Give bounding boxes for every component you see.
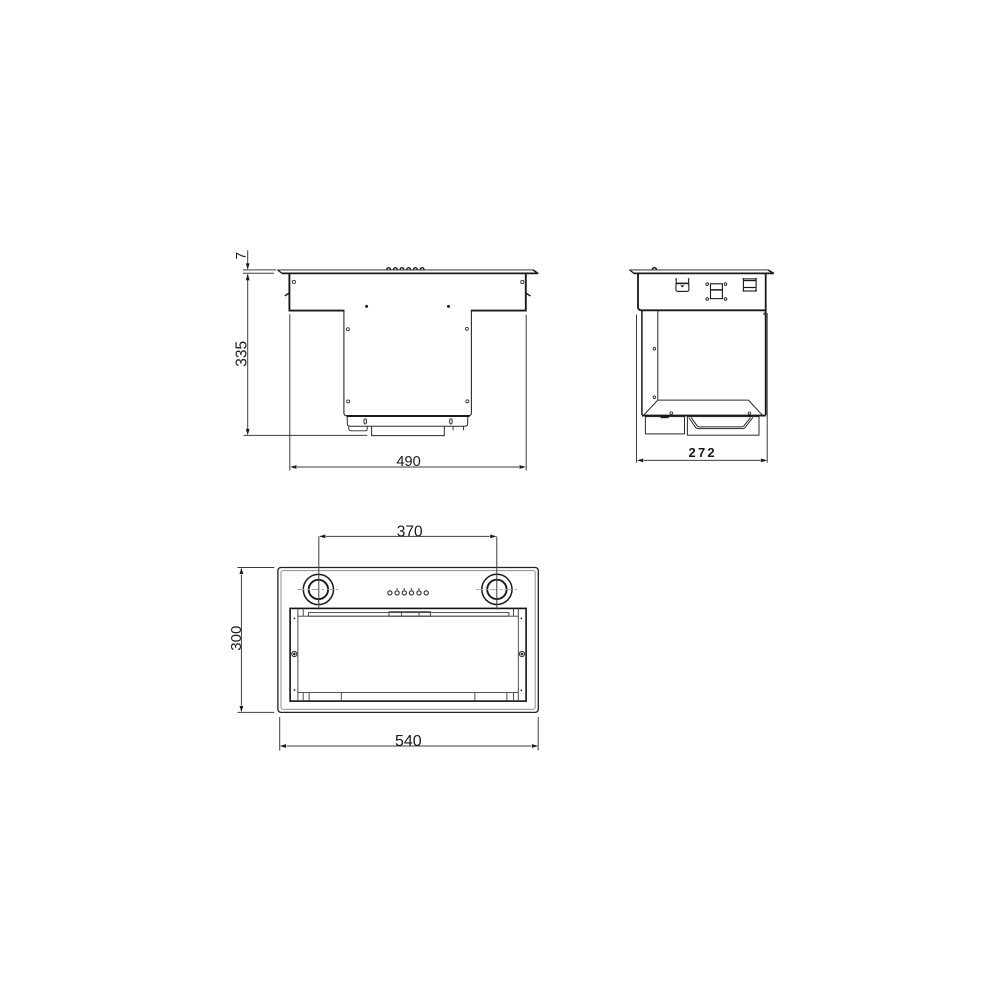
- svg-text:300: 300: [228, 626, 245, 651]
- svg-text:370: 370: [397, 524, 423, 541]
- svg-text:540: 540: [395, 733, 422, 750]
- svg-text:7: 7: [234, 252, 249, 260]
- svg-text:490: 490: [396, 454, 420, 470]
- svg-text:272: 272: [689, 445, 717, 460]
- svg-text:335: 335: [233, 341, 250, 367]
